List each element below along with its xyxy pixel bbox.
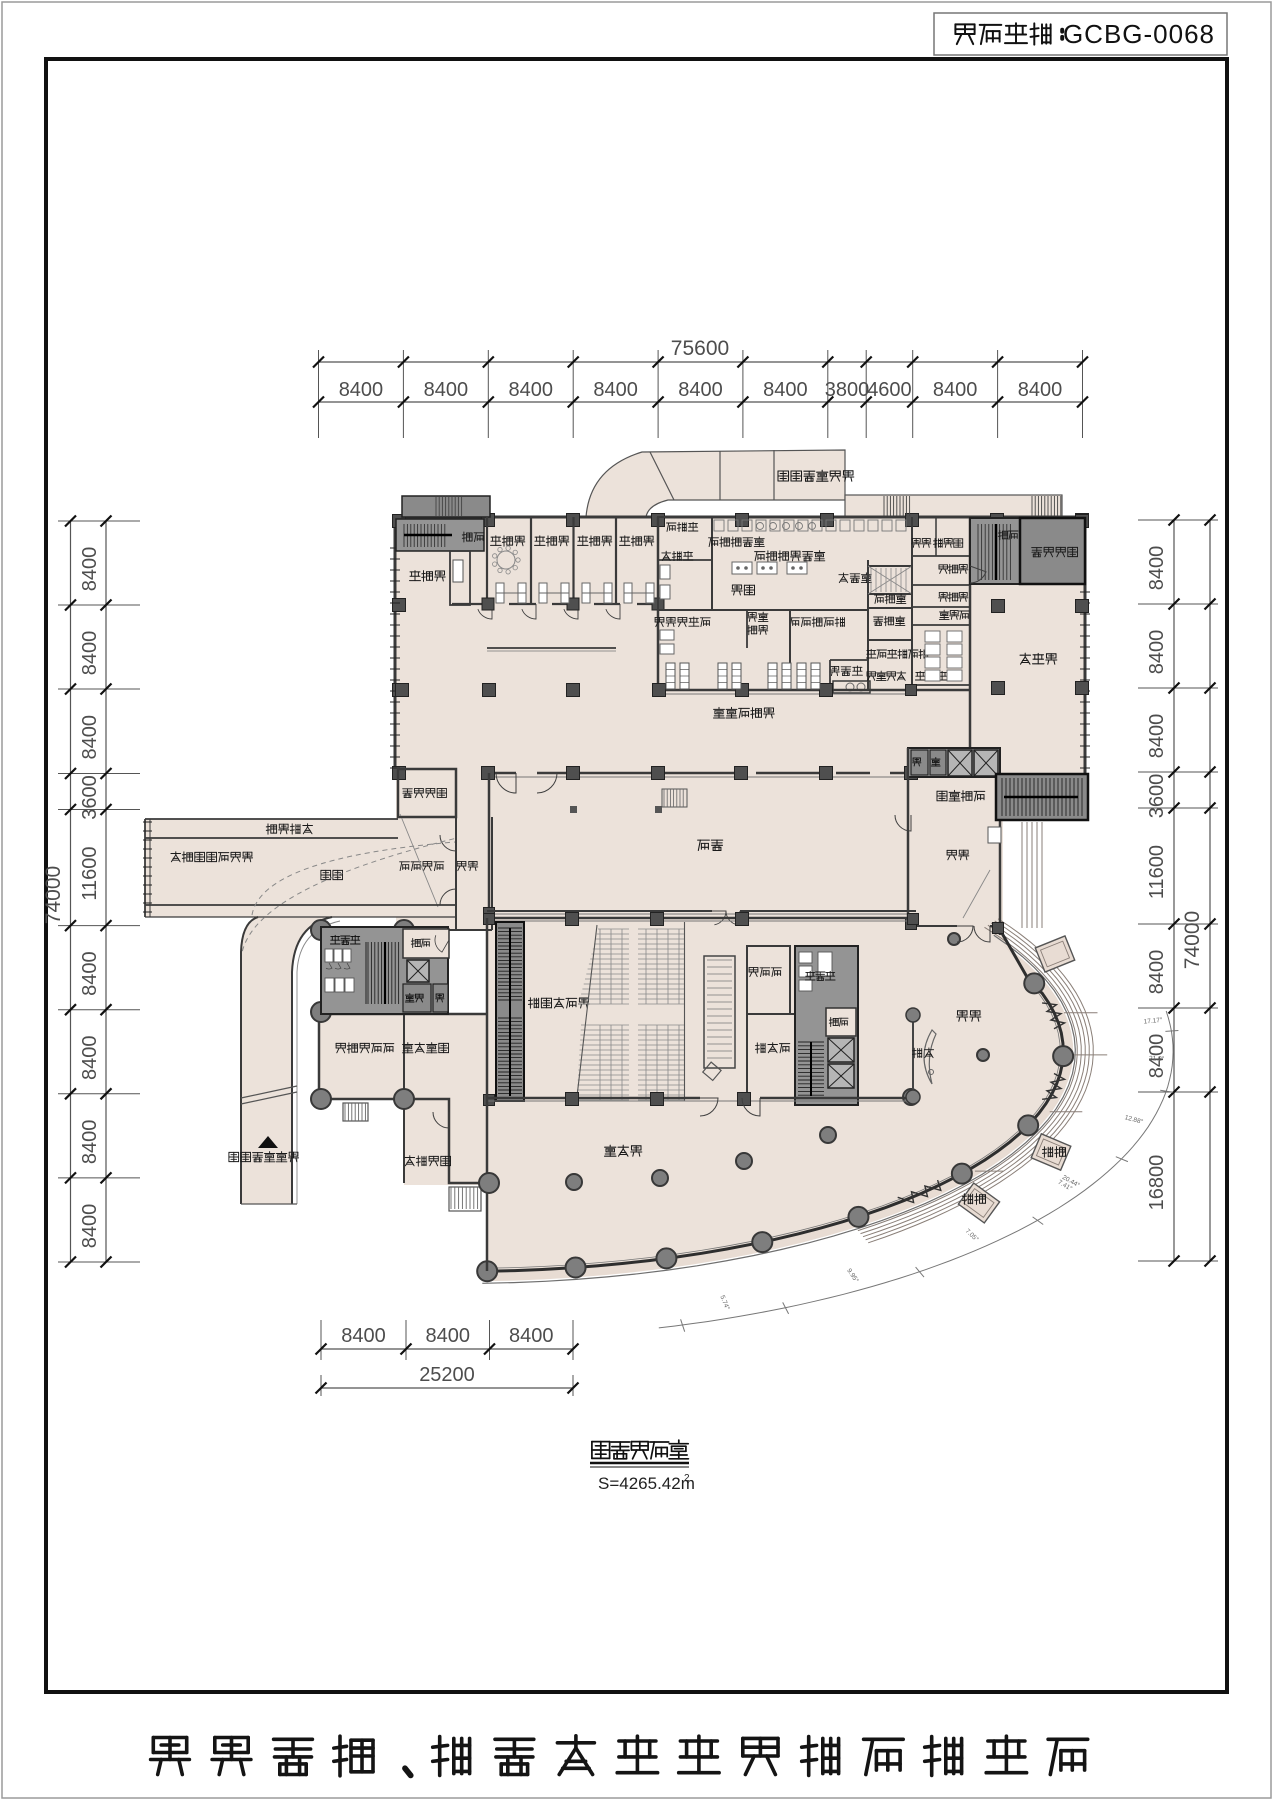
svg-text:8400: 8400 (79, 951, 101, 996)
svg-text:11600: 11600 (79, 846, 101, 900)
svg-text:S=4265.42m: S=4265.42m (598, 1474, 695, 1493)
svg-text:8400: 8400 (509, 379, 554, 401)
svg-text:74000: 74000 (42, 866, 65, 924)
svg-text:3600: 3600 (79, 775, 101, 820)
svg-text:8400: 8400 (79, 1204, 101, 1249)
svg-text:8400: 8400 (933, 379, 978, 401)
svg-text:16800: 16800 (1146, 1155, 1168, 1211)
svg-text:8400: 8400 (1018, 379, 1063, 401)
svg-text:8400: 8400 (79, 631, 101, 676)
svg-text:8400: 8400 (1146, 630, 1168, 675)
svg-text:3600: 3600 (1146, 774, 1168, 819)
svg-text:4600: 4600 (867, 379, 912, 401)
svg-text:8400: 8400 (1146, 546, 1168, 591)
svg-text:8400: 8400 (79, 715, 101, 760)
svg-text:11600: 11600 (1146, 845, 1168, 899)
svg-text:8400: 8400 (593, 379, 638, 401)
svg-text:2: 2 (684, 1473, 690, 1484)
svg-text:8400: 8400 (79, 1036, 101, 1081)
svg-text:25200: 25200 (419, 1364, 475, 1386)
svg-text:8400: 8400 (79, 1120, 101, 1165)
svg-text:8400: 8400 (509, 1325, 554, 1347)
svg-text:8400: 8400 (678, 379, 723, 401)
svg-text:75600: 75600 (671, 337, 729, 360)
svg-text:8400: 8400 (1146, 950, 1168, 995)
svg-text:8400: 8400 (763, 379, 808, 401)
svg-text:GCBG-0068: GCBG-0068 (1063, 19, 1215, 49)
svg-text:21.2°: 21.2° (1149, 1054, 1165, 1063)
svg-text:8400: 8400 (339, 379, 384, 401)
svg-text:8400: 8400 (79, 547, 101, 592)
svg-text:8400: 8400 (341, 1325, 386, 1347)
svg-text:8400: 8400 (1146, 714, 1168, 759)
svg-text:8400: 8400 (426, 1325, 471, 1347)
svg-text:74000: 74000 (1181, 911, 1204, 969)
svg-text:8400: 8400 (424, 379, 469, 401)
